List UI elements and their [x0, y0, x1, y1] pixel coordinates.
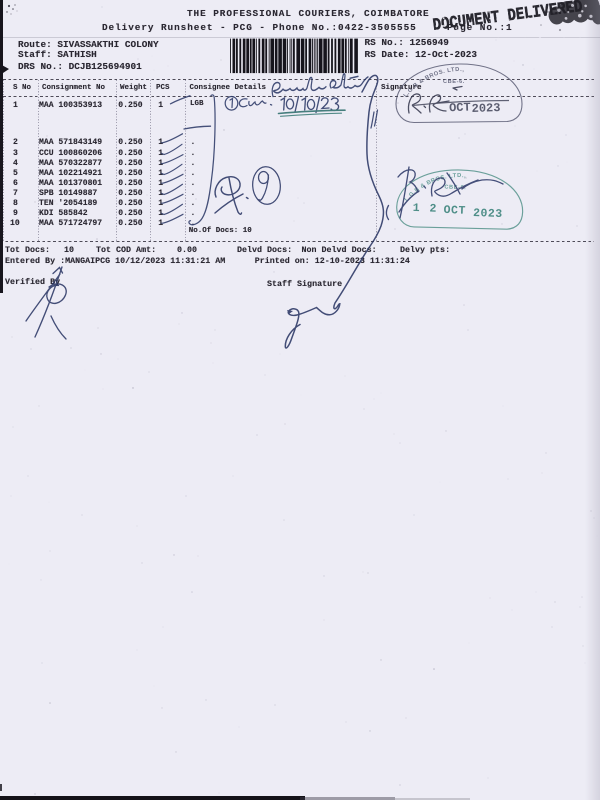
svg-text:CBE-6.: CBE-6. — [443, 79, 465, 85]
svg-text:2023: 2023 — [473, 207, 503, 221]
svg-text:OCT: OCT — [443, 204, 466, 218]
svg-text:2023: 2023 — [471, 101, 500, 116]
svg-text:1 2: 1 2 — [412, 202, 438, 216]
